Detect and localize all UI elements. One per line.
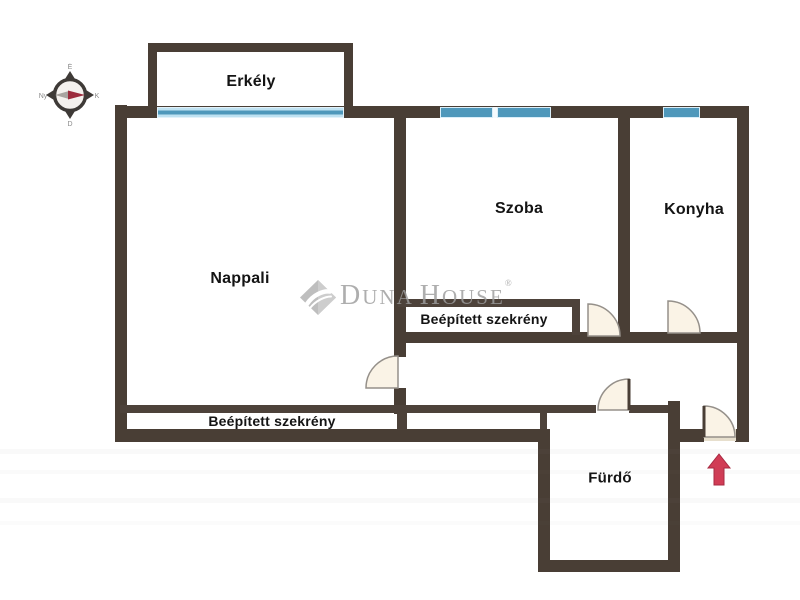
wall-hall-bottom-left (120, 405, 596, 413)
wall-left-outer (115, 105, 127, 442)
wall-balcony-top (148, 43, 353, 52)
artifact-band (0, 521, 800, 525)
compass-south-label: D (67, 121, 72, 127)
room-label-wardrobe-lower: Beépített szekrény (208, 413, 335, 429)
room-label-erkely: Erkély (226, 73, 275, 91)
room-label-szoba: Szoba (495, 200, 543, 218)
wall-wardrobe-lower-divider (397, 412, 407, 430)
room-label-konyha: Konyha (664, 201, 724, 219)
entrance-door-arc (702, 402, 739, 439)
szoba-door-arc (586, 301, 621, 338)
wall-bottom-outer (115, 429, 548, 442)
compass-icon: É K D Ny (38, 63, 102, 127)
watermark-text: DUNAHOUSE® (340, 278, 514, 312)
compass-east-label: K (95, 93, 100, 100)
compass-north-label: É (68, 63, 73, 71)
nappali-door-arc (364, 354, 400, 390)
room-label-furdo: Fürdő (588, 470, 632, 487)
wall-furdo-bottom (538, 560, 680, 572)
szoba-window-pane-1 (440, 107, 493, 118)
wall-balcony-left (148, 43, 157, 109)
furdo-door-arc (594, 377, 631, 412)
compass-west-label: Ny (39, 93, 48, 100)
wall-nook-bottom-left (680, 429, 704, 442)
wall-furdo-right (668, 401, 680, 572)
szoba-window-pane-2 (497, 107, 551, 118)
entrance-arrow-icon (706, 452, 732, 488)
dunahouse-diamond-logo-icon (299, 279, 337, 316)
room-label-nappali: Nappali (210, 270, 269, 288)
wall-nappali-szoba-upper (394, 117, 406, 357)
konyha-window (663, 107, 700, 118)
wall-right-outer (737, 106, 749, 442)
floor-plan: É K D Ny Erkély Nappali Szoba Konyha Beé… (0, 0, 800, 600)
wall-balcony-right (344, 43, 353, 109)
artifact-band (0, 498, 800, 503)
balcony-door-window (157, 107, 344, 118)
watermark: DUNAHOUSE® (296, 276, 506, 320)
wall-strip-closer (540, 412, 547, 430)
wall-wardrobe-upper-right (572, 299, 580, 335)
artifact-band (0, 449, 800, 454)
konyha-door-arc (666, 299, 702, 335)
artifact-band (0, 470, 800, 474)
wall-furdo-left (538, 429, 550, 572)
wall-hall-bottom-right (629, 405, 672, 413)
